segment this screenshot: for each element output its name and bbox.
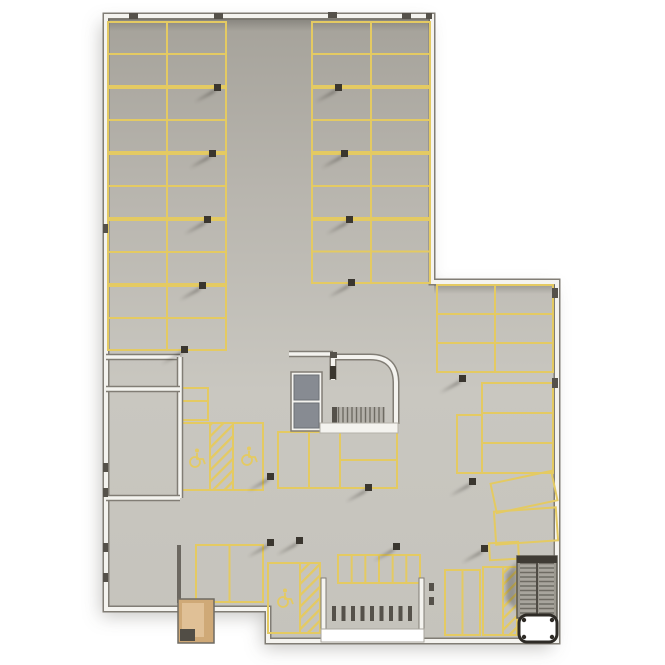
column [335, 84, 342, 91]
floor-plan-canvas [0, 0, 665, 665]
bike-rack [399, 606, 403, 621]
elevator-cab [294, 403, 319, 428]
wall-stub [426, 13, 432, 19]
access-aisle-hatch [300, 563, 320, 633]
column [393, 543, 400, 550]
bike-rack [332, 606, 336, 621]
white-rounded-structure [519, 615, 557, 642]
wall-stub [552, 288, 558, 298]
wall-stub [328, 12, 337, 18]
structure-corner [522, 635, 526, 639]
wall-stub [103, 463, 108, 472]
wall-stub [402, 13, 411, 19]
wall-shadow-top [108, 19, 430, 31]
stairwell-top-wall [517, 556, 557, 563]
bike-rack [389, 606, 393, 621]
wheelchair-head [283, 589, 287, 593]
wheelchair-head [195, 449, 199, 453]
bike-rack [342, 606, 346, 621]
wall-stub [429, 597, 434, 605]
stair-run [337, 407, 385, 424]
wall-stub [103, 573, 108, 582]
access-aisle-hatch [210, 423, 233, 490]
elevator-cab [294, 375, 319, 400]
bike-rack [408, 606, 412, 621]
wall-stub [330, 352, 337, 358]
bike-rack [380, 606, 384, 621]
column [296, 537, 303, 544]
wall-stub [103, 488, 108, 497]
column [209, 150, 216, 157]
core-front-wall [320, 423, 398, 433]
column [204, 216, 211, 223]
stair-flight [539, 559, 554, 615]
column [181, 346, 188, 353]
stair-flight [520, 559, 536, 615]
door-opening [330, 366, 336, 379]
enclosure-post [419, 578, 424, 635]
low-wall [177, 545, 181, 603]
wall-stub [429, 583, 434, 591]
bike-rack [370, 606, 374, 621]
column [481, 545, 488, 552]
utility-equipment [180, 629, 195, 641]
column [341, 150, 348, 157]
bike-rack [361, 606, 365, 621]
column [469, 478, 476, 485]
utility-room [178, 599, 214, 643]
parking-garage-floor-plan [0, 0, 665, 665]
wall-stub [214, 13, 223, 19]
column [348, 279, 355, 286]
wall-stub [129, 13, 138, 19]
enclosure-post [321, 578, 326, 635]
structure-corner [550, 635, 554, 639]
column [365, 484, 372, 491]
wall-stub [552, 378, 558, 388]
structure-corner [550, 618, 554, 622]
wheelchair-head [247, 447, 251, 451]
structure-corner [522, 618, 526, 622]
wall-stub [103, 543, 108, 552]
column [459, 375, 466, 382]
bike-rack [351, 606, 355, 621]
column [214, 84, 221, 91]
wall-stub [103, 224, 108, 233]
column [199, 282, 206, 289]
enclosure-front-wall [321, 629, 424, 642]
column [346, 216, 353, 223]
column [267, 539, 274, 546]
column [267, 473, 274, 480]
